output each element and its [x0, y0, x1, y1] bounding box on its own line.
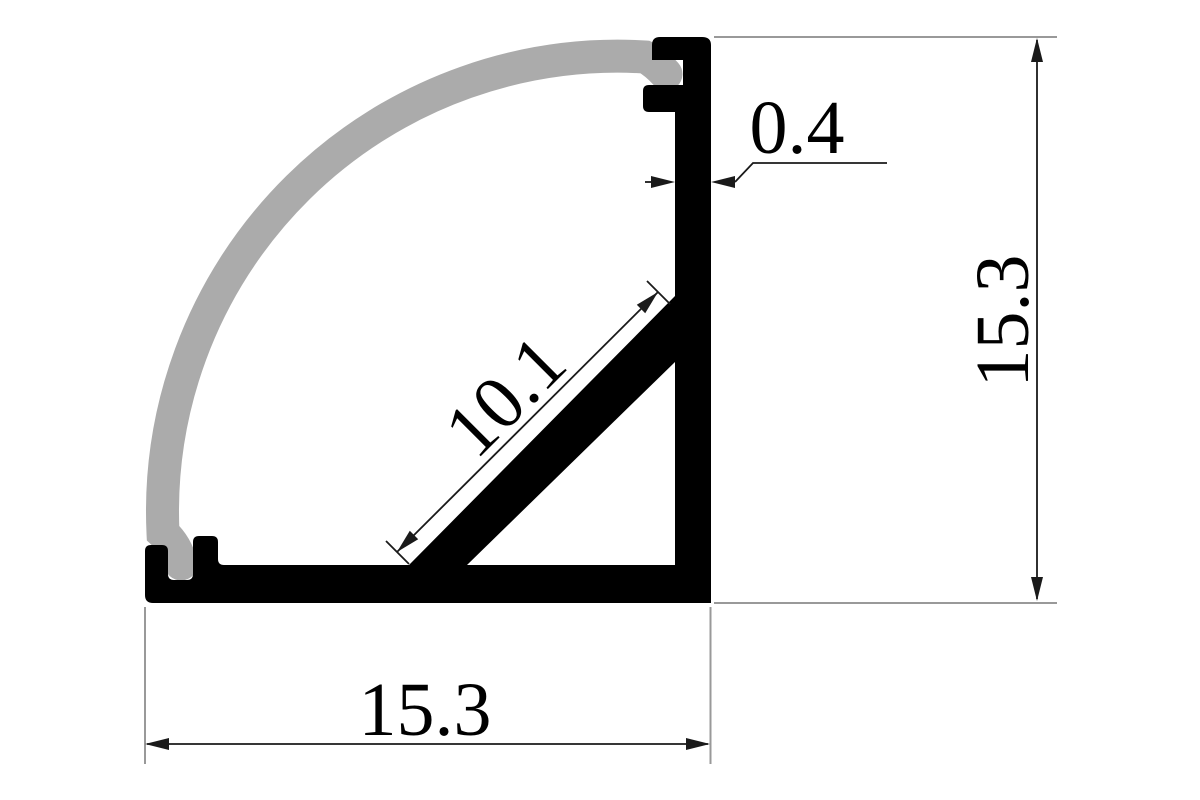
wall-thickness-label: 0.4: [750, 86, 845, 170]
dim-wall-right-arrowhead: [711, 176, 735, 188]
diffuser-cover: [163, 56, 666, 564]
dim-height-bottom-arrowhead: [1031, 577, 1043, 601]
technical-drawing-canvas: 0.4 15.3 15.3 10.1: [0, 0, 1200, 800]
dim-height-top-arrowhead: [1031, 38, 1043, 62]
profile-body: [145, 37, 711, 603]
dim-width-left-arrowhead: [145, 738, 169, 750]
dim-diagonal: 10.1: [386, 281, 670, 564]
dim-width-right-arrowhead: [686, 738, 710, 750]
width-label: 15.3: [359, 668, 492, 752]
dim-width: 15.3: [145, 607, 711, 764]
dim-wall-left-arrowhead: [651, 176, 675, 188]
height-label: 15.3: [961, 255, 1045, 388]
technical-drawing-page: 0.4 15.3 15.3 10.1: [0, 0, 1200, 800]
